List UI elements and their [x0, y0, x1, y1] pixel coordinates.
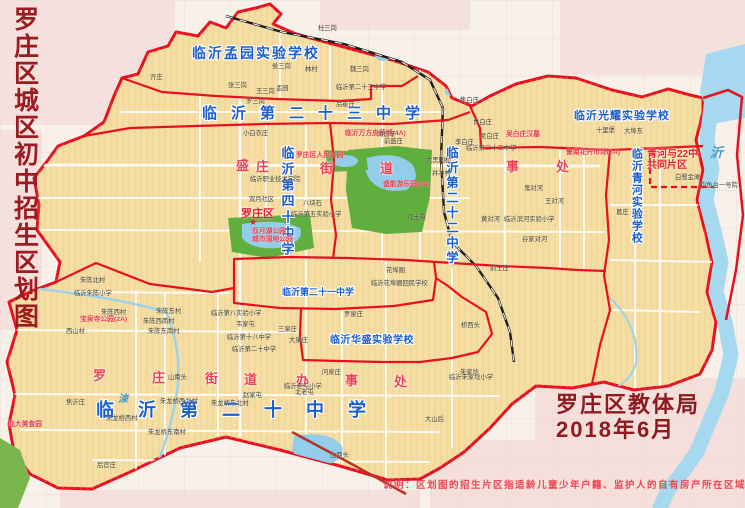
village-label: 王三岗: [256, 88, 275, 95]
subdistrict-name-char: 街: [320, 162, 333, 177]
subdistrict-name-char: 庄: [256, 160, 269, 175]
village-label: 问泉庄: [322, 369, 341, 376]
village-label: 魏三岗: [350, 66, 369, 73]
subdistrict-name-char: 道: [244, 373, 257, 388]
subdistrict-name-char: 处: [394, 375, 407, 390]
village-label: 朱龙桥东南村: [148, 429, 186, 436]
village-label: 临沂第八实验小学: [211, 310, 261, 317]
poi-wubaizhuang-han-tomb: 吴白庄汉墓: [506, 131, 540, 139]
subdistrict-name-char: 事: [506, 160, 519, 175]
village-label: 齐庄: [150, 74, 163, 81]
poi-wanfang-leather-city: 临沂万方皮革城(4A): [345, 130, 406, 138]
label-no40-school: 临沂第四十中学: [279, 146, 294, 258]
poi-linda-food-park: 临大美食园: [8, 421, 42, 429]
village-label: 朱龙桥西村: [106, 415, 137, 422]
label-no21-school: 临沂第二十一中学: [282, 287, 354, 297]
poi-shuangyuehu-park: 双月湖公园 城市湿地公园: [252, 228, 293, 243]
village-label: 三泉庄: [278, 326, 297, 333]
village-label: 朱陈东南村: [148, 328, 179, 335]
subdistrict-name-char: 事: [345, 374, 358, 389]
village-label: 谷家对河: [522, 236, 547, 243]
label-luozhuang-district-seat: 罗庄区: [241, 208, 274, 220]
village-label: 朱陈北村: [80, 277, 105, 284]
village-label: 白鹭金滩: [675, 174, 700, 181]
village-label: 前王庄: [490, 265, 509, 272]
village-label: 临沂朱家埝小学: [449, 374, 493, 381]
poi-baoquansi-park: 宝泉寺公园(2A): [80, 316, 127, 324]
village-label: 青白庄: [473, 119, 492, 126]
village-label: 双月社区: [249, 196, 274, 203]
village-label: 赵家屯: [243, 392, 262, 399]
label-mengyuan-school: 临沂孟园实验学校: [192, 46, 320, 62]
village-label: 临沂花埠圈回民学校: [371, 280, 428, 287]
village-label: 小白衣庄: [243, 130, 268, 137]
poi-renmin-park: 罗庄区人民公园: [296, 152, 344, 160]
publisher-name: 罗庄区教体局: [556, 392, 700, 417]
village-label: 孟园: [276, 85, 289, 92]
village-label: 焦沂庄: [66, 399, 85, 406]
village-label: 大埠东: [624, 128, 643, 135]
village-label: 罗泉庄: [344, 311, 363, 318]
label-guangyao-school: 临沂光耀实验学校: [574, 110, 670, 122]
label-joint-zone-qinghe-no22: 青河与22中 共同片区: [647, 149, 698, 171]
publish-date: 2018年6月: [556, 417, 700, 442]
village-label: 十里堡: [596, 127, 615, 134]
label-qinghe-school: 临沂青河实验学校: [630, 148, 642, 244]
village-label: 黄对河: [481, 216, 500, 223]
subdistrict-name-char: 道: [380, 162, 393, 177]
village-label: 焦白庄: [460, 97, 479, 104]
village-label: 临沂滨河实验小学: [504, 216, 554, 223]
map-disclaimer-note: 说明：区划图的招生片区指适龄儿童少年户籍、监护人的自有房产所在区域: [383, 477, 745, 491]
village-label: 井冲村: [432, 170, 451, 177]
district-gov-star-marker: ★: [249, 217, 257, 227]
village-label: 北老屯: [295, 389, 314, 396]
village-label: 大山后: [425, 416, 444, 423]
village-label: 大泉庄: [289, 337, 308, 344]
village-label: 南官子: [377, 131, 396, 138]
village-label: 朱陈东村: [156, 308, 181, 315]
label-no22-school: 临沂第二十二中学: [444, 146, 458, 266]
village-label: 朱龙桥西北村: [160, 398, 198, 405]
publisher-block: 罗庄区教体局 2018年6月: [556, 392, 700, 443]
village-label: 大黑园村: [426, 157, 451, 164]
village-label: 桥西头: [461, 322, 480, 329]
village-label: 西山村: [66, 328, 85, 335]
village-label: 朱陈西村: [101, 309, 126, 316]
village-label: 山南头: [168, 374, 187, 381]
village-label: 临沂第二十二中学: [466, 145, 516, 152]
subdistrict-name-char: 处: [556, 160, 569, 175]
village-label: 王对河: [545, 198, 564, 205]
village-label: 临沂第十八中学: [227, 334, 271, 341]
village-label: 鬼对河: [524, 185, 543, 192]
village-label: 葛庄: [616, 209, 629, 216]
subdistrict-name-char: 盛: [236, 159, 249, 174]
village-label: 李白庄: [455, 139, 474, 146]
subdistrict-name-char: 罗: [93, 369, 106, 384]
map-title-vertical: 罗庄区城区初中招生区划图: [10, 6, 38, 330]
village-label: 前盛庄: [384, 138, 403, 145]
village-label: 林村: [305, 66, 318, 73]
village-label: 后崔庄: [336, 101, 355, 108]
village-label: 临沂朱陈小学: [74, 290, 112, 297]
subdistrict-name-char: 办: [296, 374, 309, 389]
label-huasheng-school: 临沂华盛实验学校: [330, 335, 414, 346]
label-no23-school: 临沂第二十三中学: [202, 106, 434, 123]
village-label: 红土屯: [407, 214, 426, 221]
label-yi-river: 沂: [710, 146, 723, 161]
village-label: 临沂老屯小学: [284, 383, 322, 390]
poi-lunan-flower-market: 鲁南花卉市场(3A): [566, 149, 620, 157]
village-label: 后官庄: [97, 462, 116, 469]
village-label: 侯三岗: [272, 63, 291, 70]
map-page: 临沂孟园实验学校临沂第二十三中学临沂第四十中学临沂第二十二中学临沂光耀实验学校临…: [0, 0, 745, 508]
village-label: 钓鱼台一号院: [700, 182, 738, 189]
village-label: 张三岗: [228, 82, 247, 89]
label-no20-school: 临沂第二十中学: [96, 400, 390, 420]
village-label: 临沂第二十中学: [232, 346, 276, 353]
poi-shengneng-amusement-park: 盛能游乐园(3A): [383, 181, 430, 189]
village-label: 杜三岗: [318, 25, 337, 32]
village-label: 临沂职业技术学院: [250, 176, 300, 183]
village-label: 朱龙桥东北村: [211, 400, 249, 407]
village-label: 朱陈西南村: [143, 318, 174, 325]
village-label: 临沂第二十三中学: [336, 84, 386, 91]
village-label: 山西头: [330, 452, 349, 459]
village-label: 罗三岗: [246, 98, 265, 105]
village-label: 花埠圈: [386, 267, 405, 274]
village-label: 韦家屯: [236, 321, 255, 328]
village-label: 朱家埝: [460, 369, 479, 376]
village-label: 临沂第五实验小学: [291, 211, 341, 218]
subdistrict-name-char: 街: [205, 372, 218, 387]
label-su-river: 涑: [118, 394, 128, 405]
village-label: 吴白庄: [480, 133, 499, 140]
subdistrict-name-char: 庄: [152, 371, 165, 386]
village-label: 八块石: [303, 200, 322, 207]
